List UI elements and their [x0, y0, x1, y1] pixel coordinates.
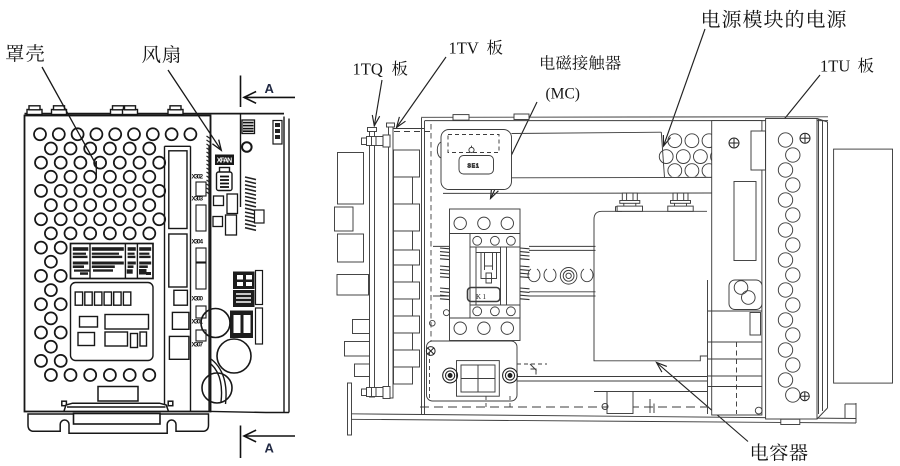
svg-text:X300: X300	[192, 296, 204, 303]
svg-text:SE1: SE1	[468, 163, 480, 169]
svg-text:X302: X302	[192, 174, 204, 181]
svg-text:A: A	[265, 81, 275, 96]
svg-text:(MC): (MC)	[546, 86, 580, 103]
svg-text:X303: X303	[192, 196, 204, 203]
svg-text:1TV: 1TV	[449, 39, 479, 58]
svg-text:K1: K1	[476, 293, 488, 301]
svg-text:A: A	[265, 441, 275, 456]
svg-text:X304: X304	[192, 239, 204, 246]
svg-text:1TQ: 1TQ	[353, 60, 383, 79]
svg-text:X307: X307	[192, 342, 204, 349]
svg-text:XFAN: XFAN	[217, 158, 233, 165]
svg-text:1TU: 1TU	[820, 57, 850, 76]
